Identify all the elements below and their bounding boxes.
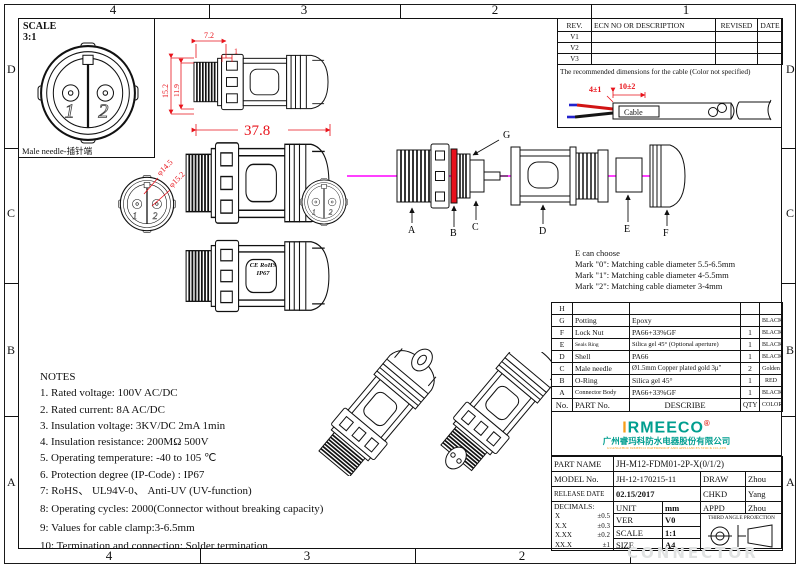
border-tick (400, 4, 401, 18)
note-line: 8: Operating cycles: 2000(Connector with… (40, 502, 348, 517)
note-line: 9: Values for cable clamp:3-6.5mm (40, 521, 348, 536)
part-row-no: G (552, 315, 573, 327)
e-options-line: Mark "0": Matching cable diameter 5.5-6.… (575, 259, 787, 270)
border-tick (782, 416, 796, 417)
draw-value: Zhou (746, 472, 783, 487)
exploded-label-a: A (408, 225, 416, 236)
pin-2-numeral: 2 (329, 207, 333, 216)
cable-label: Cable (624, 108, 643, 117)
part-row-name: Lock Nut (573, 327, 630, 339)
part-row-color: Golden (760, 363, 783, 375)
part-row-qty: 1 (741, 327, 760, 339)
revision-table: REV. ECN NO OR DESCRIPTION REVISED DATE … (557, 18, 783, 65)
dim-phi-15-2: φ15.2 (167, 170, 187, 190)
chkd-value: Yang (746, 487, 783, 502)
exploded-label-f: F (663, 228, 669, 236)
e-options-line: Mark "2": Matching cable diameter 3-4mm (575, 281, 787, 292)
connector-face-view-large: 1 2 (37, 42, 139, 144)
part-row-no: C (552, 363, 573, 375)
connector-iso-view-right (402, 352, 552, 476)
part-name-label: PART NAME (552, 457, 614, 472)
grid-col-label: 2 (507, 549, 537, 563)
brand-block: IRMEECO® 广州睿玛科防水电器股份有限公司 GUANGZHOU IRMEE… (551, 411, 782, 456)
e-options-line: Mark "1": Matching cable diameter 4-5.5m… (575, 270, 787, 281)
e-options-title: E can choose (575, 248, 787, 259)
part-row-qty: 2 (741, 363, 760, 375)
part-row-color: BLACK (760, 315, 783, 327)
grid-col-label: 4 (98, 3, 128, 17)
part-row-name: Connector Body (573, 387, 630, 399)
part-row-name: Potting (573, 315, 630, 327)
note-line: 10: Termination and connection: Solder t… (40, 539, 348, 554)
drawing-sheet: 4 3 2 1 4 3 2 D C B A D C B A SCALE 3:1 … (0, 0, 800, 568)
pin-1-numeral: 1 (312, 207, 316, 216)
pin-2-numeral: 2 (98, 100, 108, 122)
parts-header-describe: DESCRIBE (630, 399, 741, 412)
grid-row-label: D (7, 62, 16, 77)
part-row-describe: PA66+33%GF (630, 327, 741, 339)
part-row-no: A (552, 387, 573, 399)
dim-1: 1 (234, 47, 238, 56)
grid-col-label: 2 (480, 3, 510, 17)
company-name-cn: 广州睿玛科防水电器股份有限公司 (552, 436, 781, 446)
part-row-name: Male needle (573, 363, 630, 375)
rev-header: REV. (558, 19, 592, 32)
exploded-label-g: G (503, 130, 510, 141)
decimals-row: X.XX±0.2 (552, 531, 613, 541)
unit-label: UNIT (614, 502, 663, 514)
exploded-label-b: B (450, 228, 457, 236)
exploded-label-d: D (539, 226, 546, 236)
part-row-describe: PA66 (630, 351, 741, 363)
part-row-describe: Ø1.5mm Copper plated gold 3μ" (630, 363, 741, 375)
part-row-color: RED (760, 375, 783, 387)
part-row-color: BLACK (760, 387, 783, 399)
part-row-describe: Silica gel 45° (630, 375, 741, 387)
part-row-qty: 1 (741, 339, 760, 351)
appd-label: APPD (701, 502, 746, 514)
grid-col-label: 3 (289, 3, 319, 17)
part-row-color (760, 303, 783, 315)
decimals-row: X.X±0.3 (552, 522, 613, 532)
rev-row-id: V3 (558, 54, 592, 65)
chkd-label: CHKD (701, 487, 746, 502)
ce-rohs-marking: CE RoHS IP67 (240, 262, 286, 277)
dim-37-8: 37.8 (244, 123, 270, 139)
rev-row-id: V1 (558, 32, 592, 43)
scale-detail-box: SCALE 3:1 1 2 Male needle-插针端 (18, 18, 155, 158)
cable-note: The recommended dimensions for the cable… (558, 65, 781, 76)
border-tick (782, 148, 796, 149)
connector-watermark: CONNECTOR (627, 544, 759, 562)
parts-header-no: No. (552, 399, 573, 412)
parts-header-part: PART No. (573, 399, 630, 412)
scale-row-label: SCALE (614, 527, 663, 539)
part-row-no: F (552, 327, 573, 339)
scale-row-value: 1:1 (663, 527, 701, 539)
part-row-color: BLACK (760, 339, 783, 351)
border-tick (415, 549, 416, 564)
border-tick (4, 283, 18, 284)
ver-value: V0 (663, 514, 701, 527)
border-tick (591, 4, 592, 18)
grid-row-label: C (786, 206, 794, 221)
logo-rest: RMEECO (628, 419, 704, 436)
dim-15-2: 15.2 (161, 84, 170, 98)
exploded-label-c: C (472, 222, 479, 233)
draw-label: DRAW (701, 472, 746, 487)
part-row-color: BLACK (760, 351, 783, 363)
grid-row-label: D (786, 62, 795, 77)
part-row-qty (741, 303, 760, 315)
parts-header-qty: QTY (741, 399, 760, 412)
grid-row-label: A (786, 475, 795, 490)
dim-7-2: 7.2 (204, 31, 214, 40)
dim-phi-14-5: φ14.5 (155, 158, 175, 178)
cable-dim-10: 10±2 (619, 82, 635, 91)
irmeeco-logo: IRMEECO® (552, 415, 781, 436)
part-row-qty (741, 315, 760, 327)
e-options-note: E can choose Mark "0": Matching cable di… (575, 248, 787, 292)
model-label: MODEL No. (552, 472, 614, 487)
ce-rohs-line: CE RoHS (240, 262, 286, 270)
part-row-qty: 1 (741, 387, 760, 399)
grid-col-label: 1 (671, 3, 701, 17)
dimension-overlay: 7.2 1 15.2 11.9 37.8 (160, 28, 340, 140)
decimals-row: XX.X±1 (552, 541, 613, 551)
appd-value: Zhou (746, 502, 783, 514)
unit-value: mm (663, 502, 701, 514)
decimals-label: DECIMALS: (552, 502, 613, 512)
ver-label: VER (614, 514, 663, 527)
ip67-line: IP67 (240, 270, 286, 278)
part-row-no: B (552, 375, 573, 387)
parts-header-color: COLOR (760, 399, 783, 412)
part-row-qty: 1 (741, 375, 760, 387)
part-row-describe: Epoxy (630, 315, 741, 327)
part-row-color: BLACK (760, 327, 783, 339)
part-row-no: E (552, 339, 573, 351)
part-row-describe: Silica gel 45° (Optional aperture) (630, 339, 741, 351)
company-name-en: GUANGZHOU IRMEECO WATERPROOF AND APPLIAN… (552, 446, 781, 451)
part-row-qty: 1 (741, 351, 760, 363)
part-row-name (573, 303, 630, 315)
part-name-value: JH-M12-FDM01-2P-X(0/1/2) (614, 457, 783, 472)
projection-label: THIRD ANGLE PROJECTION (701, 514, 782, 522)
release-date-value: 02.15/2017 (614, 487, 701, 502)
part-row-describe (630, 303, 741, 315)
phi-dimension-labels: φ14.5 φ15.2 (112, 146, 212, 232)
registered-mark: ® (704, 419, 711, 428)
parts-table: H G Potting Epoxy BLACK F Lock Nut PA66+… (551, 302, 783, 412)
rev-header: REVISED (716, 19, 758, 32)
pin-1-numeral: 1 (65, 100, 75, 122)
note-line: 7: RoHS、 UL94V-0、 Anti-UV (UV-function) (40, 484, 348, 499)
decimals-cell: DECIMALS: X±0.5 X.X±0.3 X.XX±0.2 XX.X±1 (552, 502, 614, 551)
cable-recommendation-box: The recommended dimensions for the cable… (557, 64, 782, 128)
scale-caption: Male needle-插针端 (22, 145, 92, 157)
connector-face-view-small: 1 2 (300, 178, 348, 226)
border-tick (209, 4, 210, 18)
rev-header: ECN NO OR DESCRIPTION (592, 19, 716, 32)
scale-value: 3:1 (23, 32, 36, 43)
grid-row-label: A (7, 475, 16, 490)
cable-drawing: 4±1 10±2 Cable (561, 78, 779, 126)
border-tick (4, 416, 18, 417)
grid-row-label: B (7, 343, 15, 358)
exploded-view: G A B C D E F (345, 124, 690, 236)
part-row-name: O-Ring (573, 375, 630, 387)
dim-11-9: 11.9 (172, 84, 181, 97)
exploded-label-e: E (624, 224, 630, 235)
part-row-no: H (552, 303, 573, 315)
part-row-name: Seals Ring (573, 339, 630, 351)
scale-label: SCALE (23, 21, 56, 32)
part-row-no: D (552, 351, 573, 363)
rev-header: DATE (758, 19, 783, 32)
model-value: JH-12-170215-11 (614, 472, 701, 487)
cable-dim-4: 4±1 (589, 85, 601, 94)
title-block: PART NAME JH-M12-FDM01-2P-X(0/1/2) MODEL… (551, 456, 783, 551)
decimals-row: X±0.5 (552, 512, 613, 522)
rev-row-id: V2 (558, 43, 592, 54)
part-row-name: Shell (573, 351, 630, 363)
grid-row-label: C (7, 206, 15, 221)
border-tick (4, 148, 18, 149)
part-row-describe: PA66+33%GF (630, 387, 741, 399)
grid-row-label: B (786, 343, 794, 358)
release-date-label: RELEASE DATE (552, 487, 614, 502)
